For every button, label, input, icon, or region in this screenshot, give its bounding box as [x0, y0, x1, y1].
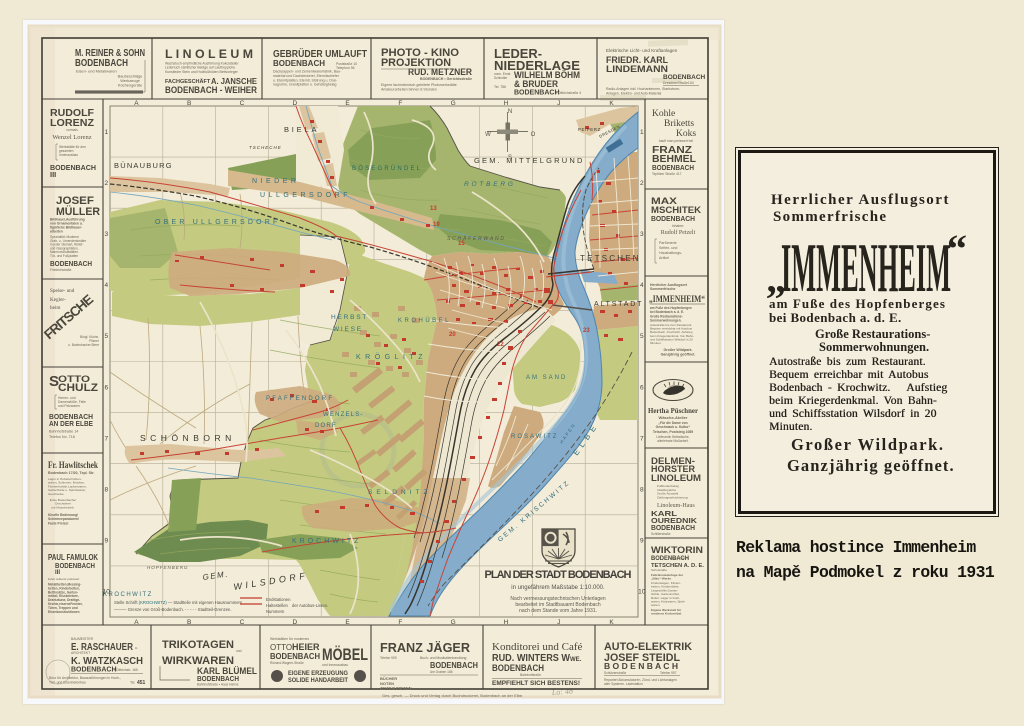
svg-text:arbeiten: arbeiten	[50, 230, 63, 234]
svg-text:BODENBACH: BODENBACH	[55, 563, 95, 570]
svg-text:u.: u.	[135, 646, 138, 650]
svg-text:TETSCHEN: TETSCHEN	[580, 254, 641, 263]
svg-text:BODENBACH: BODENBACH	[514, 90, 560, 97]
svg-text:B O D E N B A C H: B O D E N B A C H	[604, 662, 678, 671]
svg-text:Haltestellen: Haltestellen	[266, 603, 289, 608]
svg-text:WENZELS-: WENZELS-	[323, 412, 364, 418]
svg-text:BÜNAUBURG: BÜNAUBURG	[114, 161, 173, 170]
svg-text:9: 9	[104, 538, 108, 545]
svg-text:Tetschen, Poststeig 1089: Tetschen, Poststeig 1089	[653, 430, 693, 434]
svg-text:AN DER ELBE: AN DER ELBE	[49, 421, 93, 428]
svg-text:O: O	[531, 132, 536, 138]
svg-text:und: und	[236, 649, 242, 653]
svg-text:BAUMEISTER: BAUMEISTER	[71, 637, 94, 641]
svg-text:BODENBACH - WEIHER: BODENBACH - WEIHER	[165, 85, 257, 95]
svg-text:8: 8	[104, 487, 108, 494]
svg-text:AM SAND: AM SAND	[526, 375, 567, 381]
svg-text:Innenausbau: Innenausbau	[59, 153, 78, 157]
svg-text:Artikel: Artikel	[659, 256, 669, 260]
svg-text:HOPFENBERG: HOPFENBERG	[147, 565, 189, 570]
svg-text:Tür- und Fußplatten: Tür- und Fußplatten	[50, 254, 78, 258]
svg-text:BODENBACH: BODENBACH	[75, 58, 128, 69]
svg-text:F: F	[398, 100, 402, 107]
svg-text:7: 7	[104, 435, 108, 442]
svg-text:——— Grenze von Groß-Bodenbach.: ——— Grenze von Groß-Bodenbach. - - - - -…	[114, 607, 232, 612]
svg-text:K. WATZKASCH: K. WATZKASCH	[71, 655, 143, 667]
svg-text:WIKTORIN: WIKTORIN	[651, 545, 703, 555]
svg-text:Ges. gesch. — Druck und Verlag: Ges. gesch. — Druck und Verlag durch Buc…	[382, 693, 523, 698]
svg-text:Schützenstraße: Schützenstraße	[604, 671, 627, 675]
svg-text:Bodenbach 17/20, Tepl. Str.: Bodenbach 17/20, Tepl. Str.	[48, 471, 94, 475]
svg-text:TRIKOTAGEN: TRIKOTAGEN	[162, 639, 234, 651]
svg-text:moderne Korbmöbel.: moderne Korbmöbel.	[651, 612, 682, 616]
svg-text:20: 20	[449, 332, 456, 338]
svg-text:material und Dachdeckerei, Ete: material und Dachdeckerei, Eternitschief…	[273, 74, 340, 78]
svg-text:9: 9	[640, 538, 644, 545]
svg-text:• Dittrichstr. 165: • Dittrichstr. 165	[114, 668, 138, 672]
svg-text:und Innenausbau: und Innenausbau	[322, 663, 348, 667]
svg-text:Stelle Schrift (KROCHWITZ) — S: Stelle Schrift (KROCHWITZ) — Stadtteile …	[114, 600, 243, 605]
svg-text:Hertha Püschner: Hertha Püschner	[648, 406, 699, 415]
svg-text:BODENBACH: BODENBACH	[430, 661, 478, 670]
svg-text:Minuten.: Minuten.	[650, 341, 662, 345]
svg-text:Zahlungserleichterung: Zahlungserleichterung	[657, 495, 688, 499]
svg-text:Haushaltungs-: Haushaltungs-	[659, 251, 683, 255]
svg-text:5: 5	[640, 333, 644, 340]
svg-text:BEHMEL: BEHMEL	[652, 154, 696, 165]
svg-text:heim: heim	[50, 305, 60, 311]
svg-text:KRÖGLITZ: KRÖGLITZ	[356, 353, 427, 361]
svg-text:Kohle: Kohle	[652, 109, 675, 119]
svg-text:Seifen- und: Seifen- und	[659, 246, 677, 250]
svg-text:LINOLEUM: LINOLEUM	[651, 473, 701, 483]
svg-text:ZEITSCHRIFTEN: ZEITSCHRIFTEN	[380, 686, 412, 691]
svg-text:ROTBERG: ROTBERG	[464, 181, 516, 188]
svg-text:KARL BLÜMEL: KARL BLÜMEL	[197, 666, 257, 676]
svg-text:Briketts: Briketts	[664, 119, 694, 129]
svg-text:• Dittrichstraße 4: • Dittrichstraße 4	[556, 91, 581, 95]
svg-text:Anlagen, Elektro- und Auto-Mat: Anlagen, Elektro- und Auto-Material	[606, 91, 661, 95]
svg-text:TSCHECHE: TSCHECHE	[249, 145, 282, 150]
svg-text:Endstationen: Endstationen	[266, 597, 291, 602]
svg-text:DORF: DORF	[315, 423, 337, 429]
svg-text:NIEDER: NIEDER	[252, 178, 299, 185]
svg-text:Schindler: Schindler	[494, 76, 508, 80]
svg-text:BODENBACH • Gerichtsstraße: BODENBACH • Gerichtsstraße	[420, 77, 472, 81]
svg-text:Eisenkonstruktionen: Eisenkonstruktionen	[48, 610, 80, 614]
svg-text:IMMENHEIM: IMMENHEIM	[781, 231, 951, 303]
svg-text:5: 5	[104, 333, 108, 340]
svg-text:Rudolf Petzelt: Rudolf Petzelt	[661, 229, 696, 236]
svg-text:EMPFIEHLT SICH BESTENS!: EMPFIEHLT SICH BESTENS!	[492, 681, 580, 687]
svg-text:Fr. Hawlitschek: Fr. Hawlitschek	[48, 460, 98, 470]
svg-text:u. Eternitplatten, Eternit, St: u. Eternitplatten, Eternit, Stülrung u. …	[273, 78, 338, 82]
svg-text:Telefon 997: Telefon 997	[660, 671, 677, 675]
svg-text:2: 2	[104, 180, 108, 187]
svg-text:E: E	[345, 100, 350, 107]
svg-text:in ungefährem Maßstabe 1:10.00: in ungefährem Maßstabe 1:10.000.	[511, 585, 605, 591]
svg-text:Büro für Architektur, Bauausfü: Büro für Architektur, Bauausführungen in…	[49, 676, 121, 680]
svg-text:1: 1	[104, 129, 108, 136]
svg-text:BODENBACH: BODENBACH	[50, 261, 92, 268]
svg-text:BODENBACH: BODENBACH	[273, 59, 325, 68]
svg-text:Tel.: Tel.	[130, 681, 135, 685]
svg-text:Bahnhofstraße 14: Bahnhofstraße 14	[49, 430, 78, 434]
svg-text:Parfümerie: Parfümerie	[659, 241, 677, 245]
svg-text:PAUL FAMULOK: PAUL FAMULOK	[48, 553, 98, 562]
svg-text:SELDNITZ: SELDNITZ	[368, 489, 431, 496]
svg-text:kauft man preiswert bei: kauft man preiswert bei	[659, 139, 693, 143]
svg-text:BODENBACH: BODENBACH	[652, 165, 694, 172]
svg-text:Eisen- und Metallwaren: Eisen- und Metallwaren	[76, 69, 117, 74]
svg-text:Kunstleder Stein und Holzf: Kunstleder Stein und Holzfußböden Bettvo…	[165, 70, 239, 74]
svg-text:OUREDNIK: OUREDNIK	[651, 516, 698, 525]
svg-text:III: III	[50, 170, 56, 179]
svg-text:A: A	[134, 100, 139, 107]
svg-text:Schillerstraße: Schillerstraße	[651, 532, 671, 536]
svg-text:D: D	[292, 100, 297, 107]
svg-text:3: 3	[640, 231, 644, 238]
svg-text:HERBST: HERBST	[331, 314, 368, 321]
svg-text:BODENBACH: BODENBACH	[49, 414, 93, 421]
svg-text:Bahnhofstraße • Haus Hahne: Bahnhofstraße • Haus Hahne	[197, 683, 239, 687]
svg-text:Telefon 909: Telefon 909	[380, 656, 397, 660]
svg-text:vormals: vormals	[66, 128, 78, 132]
svg-text:FRANZ JÄGER: FRANZ JÄGER	[380, 640, 470, 655]
svg-text:Werkstätten für modernes: Werkstätten für modernes	[270, 637, 309, 641]
svg-text:Elektrische Licht- und Kraf: Elektrische Licht- und Kraftanlagen	[606, 48, 678, 53]
svg-text:EIGENE ERZEUGUNG: EIGENE ERZEUGUNG	[288, 671, 348, 677]
svg-text:S: S	[508, 155, 512, 161]
svg-text:Telefon No. 718: Telefon No. 718	[49, 435, 75, 439]
svg-text:und Pelzwaren: und Pelzwaren	[58, 404, 80, 408]
svg-text:W: W	[485, 132, 491, 138]
svg-text:FACHGESCHÄFT: FACHGESCHÄFT	[165, 78, 211, 85]
svg-text:BODENBACH: BODENBACH	[270, 651, 320, 661]
svg-text:WE.: WE.	[570, 657, 582, 663]
svg-text:Großer Wildpark.: Großer Wildpark.	[663, 348, 692, 352]
svg-text:C: C	[240, 100, 245, 107]
svg-text:nagrohre, Granitplatten u. Geh: nagrohre, Granitplatten u. Gehsteigbelag	[273, 83, 336, 87]
svg-text:MÖBEL: MÖBEL	[322, 645, 368, 664]
svg-text:Geschenke.: Geschenke.	[48, 492, 65, 496]
svg-text:Inhaber:: Inhaber:	[672, 224, 684, 228]
svg-text:6: 6	[104, 384, 108, 391]
svg-text:allerfeinste Maßarbeit.: allerfeinste Maßarbeit.	[657, 439, 689, 443]
svg-text:13: 13	[430, 206, 437, 212]
svg-text:& BRUDER: & BRUDER	[514, 79, 558, 89]
svg-text:Koks: Koks	[676, 129, 696, 139]
svg-text:Speise- und: Speise- und	[50, 288, 75, 294]
svg-text:7: 7	[640, 435, 644, 442]
svg-text:Tel. 786: Tel. 786	[494, 85, 506, 89]
svg-text:Buch- und Musikalienhandlung: Buch- und Musikalienhandlung	[420, 656, 466, 660]
svg-text:L I N O L E U M: L I N O L E U M	[165, 47, 253, 61]
svg-text:Wäsche-Atelier: Wäsche-Atelier	[659, 415, 688, 420]
svg-text:23: 23	[583, 328, 590, 334]
svg-text:Faste Preise!: Faste Preise!	[48, 521, 69, 525]
svg-text:liefert äußerst preiswert: liefert äußerst preiswert	[48, 577, 80, 581]
svg-text:Richard-Wagner-Straße: Richard-Wagner-Straße	[270, 661, 304, 665]
svg-text:1: 1	[640, 129, 644, 136]
svg-text:GEM. MITTELGRUND: GEM. MITTELGRUND	[474, 156, 585, 165]
svg-text:N: N	[508, 109, 512, 115]
svg-text:BIELA: BIELA	[284, 125, 319, 134]
svg-text:J: J	[557, 100, 560, 107]
svg-text:LINDEMANN: LINDEMANN	[606, 64, 668, 75]
svg-text:DresdnerStraße104: DresdnerStraße104	[663, 81, 694, 85]
svg-text:Schulstraße: Schulstraße	[651, 568, 667, 572]
svg-text:Bahnhofstraße: Bahnhofstraße	[520, 673, 541, 677]
svg-text:BODENBACH: BODENBACH	[492, 663, 544, 673]
svg-text:“: “	[947, 231, 967, 271]
svg-text:Sommerwohnungen.: Sommerwohnungen.	[650, 318, 682, 322]
svg-text:Küchengeräte: Küchengeräte	[118, 83, 142, 88]
svg-text:22: 22	[497, 342, 504, 348]
svg-text:ROSAWITZ: ROSAWITZ	[511, 434, 558, 440]
svg-text:u. Bodenbacher Biere: u. Bodenbacher Biere	[68, 343, 99, 347]
svg-text:Am Graben 186: Am Graben 186	[430, 670, 453, 674]
svg-text:RUD. METZNER: RUD. METZNER	[408, 67, 472, 77]
svg-text:MÜLLER: MÜLLER	[56, 205, 100, 218]
svg-text:PEIPERZ: PEIPERZ	[578, 127, 601, 132]
svg-text:BODENBACH: BODENBACH	[663, 74, 706, 81]
svg-text:6: 6	[640, 384, 644, 391]
svg-text:OBER ULLGERSDORF: OBER ULLGERSDORF	[155, 219, 281, 226]
svg-text:Konditorei und Café: Konditorei und Café	[492, 641, 583, 653]
svg-text:BODENBACH: BODENBACH	[50, 163, 96, 172]
svg-text:SCHÄFERWAND: SCHÄFERWAND	[447, 235, 506, 242]
svg-text:ULLGERSDORF: ULLGERSDORF	[260, 192, 351, 199]
svg-text:bei Bodenbach a. d. E.: bei Bodenbach a. d. E.	[650, 310, 684, 314]
svg-text:KROCHWITZ: KROCHWITZ	[292, 538, 361, 545]
svg-text:SOLIDE HANDARBEIT: SOLIDE HANDARBEIT	[288, 678, 348, 684]
svg-text:H: H	[504, 100, 509, 107]
svg-text:ALTSTADT: ALTSTADT	[594, 301, 643, 308]
svg-text:4: 4	[640, 282, 644, 289]
svg-text:mit Motorbetrieb.: mit Motorbetrieb.	[51, 505, 74, 509]
svg-text:PFAFFENDORF: PFAFFENDORF	[266, 396, 334, 402]
svg-text:BÖSEGRÜNDEL: BÖSEGRÜNDEL	[352, 165, 422, 172]
svg-text:G: G	[451, 100, 456, 107]
svg-text:III: III	[55, 570, 60, 576]
svg-text:Wenzel Lorenz: Wenzel Lorenz	[52, 134, 91, 141]
svg-text:waren.: waren.	[651, 603, 660, 607]
svg-text:Teplitzer Straße 417: Teplitzer Straße 417	[652, 172, 682, 176]
svg-text:PLAN DER STADT BODENBACH: PLAN DER STADT BODENBACH	[485, 569, 632, 581]
svg-text:Nummern: Nummern	[266, 609, 285, 614]
svg-text:Amateurarbeiten binnen 8 Stund: Amateurarbeiten binnen 8 Stunden	[381, 87, 437, 91]
svg-text:BODENBACH: BODENBACH	[651, 214, 695, 223]
svg-text:B: B	[187, 100, 191, 107]
svg-text:2: 2	[640, 180, 644, 187]
svg-text:Eigene fachmännisch geleitete: Eigene fachmännisch geleitete Photowerks…	[381, 83, 457, 87]
svg-text:SCHÖNBORN: SCHÖNBORN	[140, 433, 236, 443]
svg-text:4: 4	[104, 282, 108, 289]
svg-text:3: 3	[104, 231, 108, 238]
svg-text:nach dem Stande vom Jahre 1931: nach dem Stande vom Jahre 1931.	[519, 608, 597, 614]
svg-text:„IMMENHEIM“: „IMMENHEIM“	[649, 294, 705, 305]
svg-text:451: 451	[137, 680, 146, 686]
svg-text:Lo: 48: Lo: 48	[551, 687, 574, 698]
svg-text:Friedrichstraße: Friedrichstraße	[50, 268, 72, 272]
svg-text:Sommerfrische: Sommerfrische	[650, 287, 676, 291]
svg-text:KROCHWITZ: KROCHWITZ	[103, 592, 153, 598]
svg-text:Dachpappen- und Zementwarenfab: Dachpappen- und Zementwarenfabrik, Bau-	[273, 70, 342, 74]
svg-text:Ganzjährig geöffnet.: Ganzjährig geöffnet.	[661, 353, 696, 357]
svg-text:KROHÜBEL: KROHÜBEL	[398, 317, 451, 324]
svg-text:BODENBACH: BODENBACH	[651, 525, 695, 532]
svg-text:BODENBACH: BODENBACH	[71, 667, 117, 674]
svg-text:aller Systeme. Ladestation: aller Systeme. Ladestation	[604, 682, 643, 686]
svg-text:WIESE: WIESE	[333, 326, 363, 333]
svg-text:8: 8	[640, 487, 644, 494]
svg-text:Kegler-: Kegler-	[50, 297, 66, 303]
svg-text:der Autobus-Linien.: der Autobus-Linien.	[292, 603, 328, 608]
svg-text:Geschmack u. Kultur“: Geschmack u. Kultur“	[656, 425, 691, 429]
svg-text:Teplitzer Straße: Teplitzer Straße	[668, 556, 689, 560]
svg-text:CHULZ: CHULZ	[58, 382, 98, 394]
svg-text:19: 19	[433, 222, 440, 228]
